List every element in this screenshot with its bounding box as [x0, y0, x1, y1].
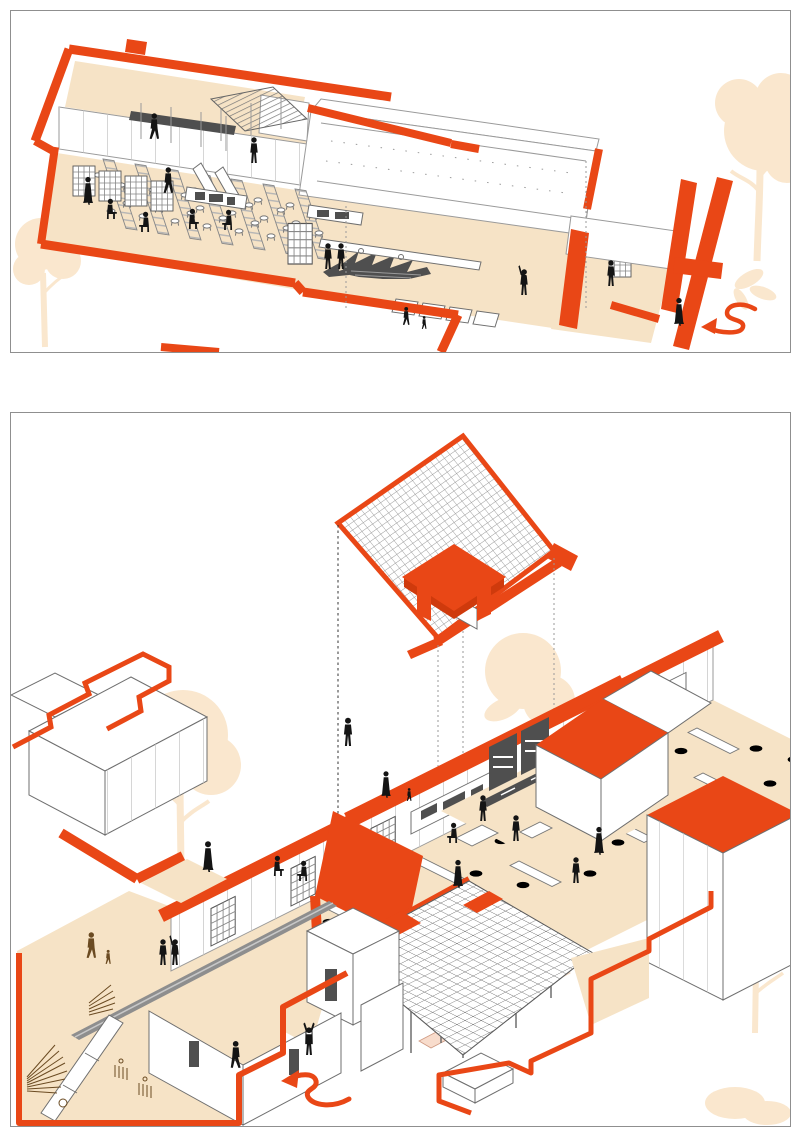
upper-axon-drawing: [11, 11, 790, 352]
panel-upper-axonometric: [10, 10, 791, 353]
white-bench: [443, 1053, 513, 1103]
exploded-grid-roof: [338, 436, 578, 659]
diagram-sheet: [0, 0, 802, 1139]
panel-ground-axonometric: [10, 412, 791, 1127]
service-block: [11, 654, 227, 903]
ground-axon-drawing: [11, 413, 790, 1126]
